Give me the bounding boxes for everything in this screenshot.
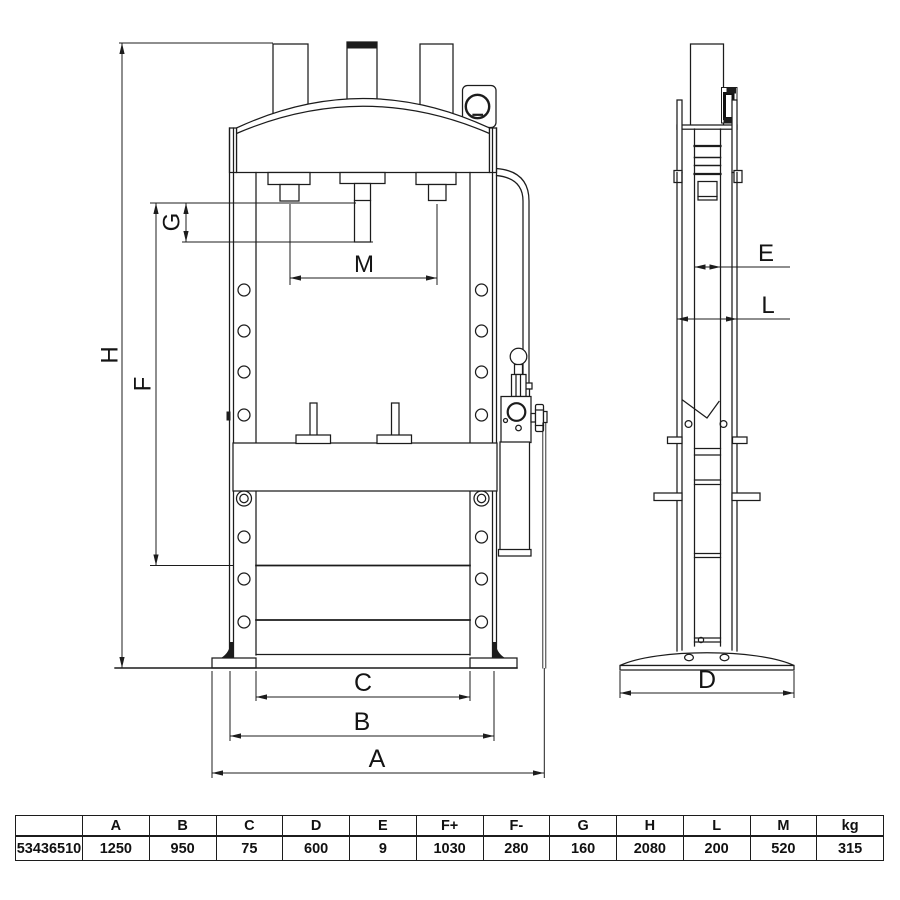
spec-value-cell: 950 [149,836,216,861]
dim-label-a: A [369,745,386,773]
spec-value-cell: 200 [683,836,750,861]
dim-label-f: F [130,377,157,392]
dim-label-l: L [761,292,774,319]
spec-header-cell: B [149,816,216,837]
technical-drawing-page: H F G M C B A D E L A B C D E F+ F- G H … [0,0,900,900]
spec-table-value-row: 53436510 1250 950 75 600 9 1030 280 160 … [16,836,884,861]
spec-value-cell: 160 [550,836,617,861]
spec-value-cell: 75 [216,836,283,861]
side-details [654,400,760,643]
side-beam-plate [677,125,737,129]
spec-header-cell: E [350,816,417,837]
spec-value-cell: 2080 [617,836,684,861]
middle-cylinder-cap [347,42,377,49]
spec-header-cell: F- [483,816,550,837]
dim-label-b: B [354,708,371,736]
spec-value-cell: 9 [350,836,417,861]
shelf-rails [256,566,470,655]
ram-rod [355,184,371,243]
spec-header-cell: A [83,816,150,837]
spec-header-cell: C [216,816,283,837]
spec-value-cell: 520 [750,836,817,861]
dim-label-d: D [698,666,716,694]
dim-label-m: M [354,251,374,278]
spec-header-cell: G [550,816,617,837]
ram-assembly [268,173,456,243]
spec-table-header-row: A B C D E F+ F- G H L M kg [16,816,884,837]
dim-label-e: E [758,240,774,267]
release-valve [531,414,536,423]
front-view [115,42,547,668]
spec-part-number: 53436510 [16,836,83,861]
press-drawing: H F G M C B A D E L [0,0,900,810]
dim-label-g: G [159,213,186,232]
spec-table: A B C D E F+ F- G H L M kg 53436510 1250… [15,815,884,861]
top-beam [230,99,497,173]
spec-header-cell: F+ [416,816,483,837]
dim-label-h: H [97,346,124,363]
work-table [233,403,497,506]
pump-handle-ball [510,348,527,365]
side-cylinder [691,44,724,128]
hand-pump [499,348,548,668]
spec-value-cell: 600 [283,836,350,861]
spec-header-cell: kg [817,816,884,837]
spec-header-cell: L [683,816,750,837]
spec-header-cell [16,816,83,837]
dim-label-c: C [354,669,372,697]
oil-tank [500,442,530,550]
spec-header-cell: D [283,816,350,837]
spec-value-cell: 1250 [83,836,150,861]
spec-value-cell: 315 [817,836,884,861]
middle-cylinder [347,42,377,104]
side-view [620,44,794,670]
spec-value-cell: 280 [483,836,550,861]
side-piston [695,146,721,200]
spec-header-cell: M [750,816,817,837]
spec-value-cell: 1030 [416,836,483,861]
spec-header-cell: H [617,816,684,837]
